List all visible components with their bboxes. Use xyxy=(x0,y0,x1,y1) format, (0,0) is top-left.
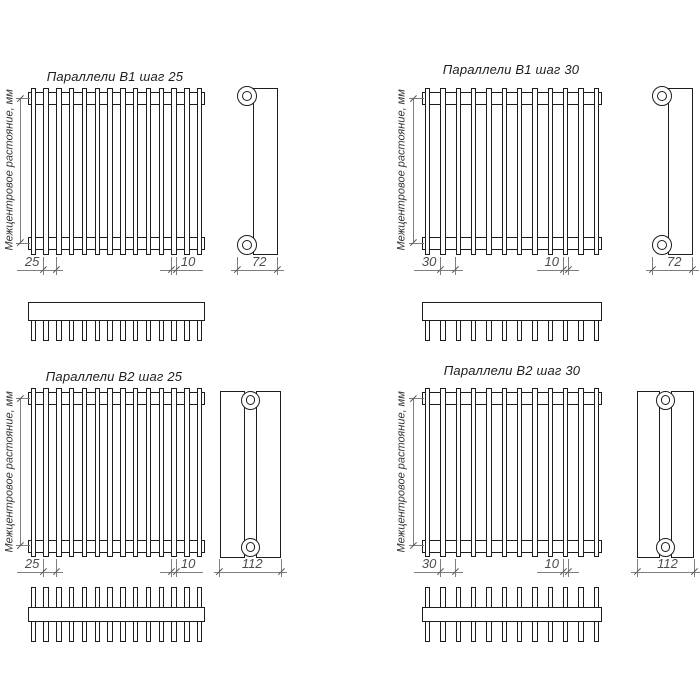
comb-tooth xyxy=(517,621,522,643)
comb-tooth xyxy=(517,587,522,609)
comb-tooth xyxy=(548,621,553,643)
comb-tooth xyxy=(456,587,461,609)
quadrant-b2-step-30: Параллели В2 шаг 30 Межцентровое растоян… xyxy=(0,0,700,700)
side-view-slab xyxy=(637,391,660,559)
pitch-dimension-label: 30 xyxy=(422,557,436,571)
radiator-tube xyxy=(578,388,583,557)
top-collector xyxy=(422,392,602,405)
dimension-line xyxy=(631,572,700,573)
comb-tooth xyxy=(594,587,599,609)
comb-tooth xyxy=(563,621,568,643)
comb-tooth xyxy=(578,587,583,609)
radiator-tube xyxy=(440,388,445,557)
comb-tooth xyxy=(532,587,537,609)
extension-line xyxy=(568,559,569,577)
extension-line xyxy=(455,559,456,577)
extension-line xyxy=(637,559,638,577)
extension-line xyxy=(694,559,695,577)
radiator-tube xyxy=(471,388,476,557)
comb-tooth xyxy=(486,587,491,609)
radiator-tube xyxy=(486,388,491,557)
depth-dimension-label: 112 xyxy=(657,557,678,571)
radiator-tube xyxy=(548,388,553,557)
comb-tooth xyxy=(486,621,491,643)
radiator-tube xyxy=(502,388,507,557)
connection-port-inner xyxy=(661,542,671,552)
comb-tooth xyxy=(502,587,507,609)
comb-tooth xyxy=(471,621,476,643)
radiator-tube xyxy=(425,388,430,557)
dimension-line xyxy=(413,399,414,546)
dimension-line xyxy=(537,572,579,573)
radiator-tube xyxy=(517,388,522,557)
connection-port-inner xyxy=(661,395,671,405)
comb-tooth xyxy=(425,621,430,643)
radiator-tube xyxy=(594,388,599,557)
bottom-collector xyxy=(422,540,602,553)
center-distance-label: Межцентровое растояние, мм xyxy=(395,392,410,552)
comb-tooth xyxy=(502,621,507,643)
comb-tooth xyxy=(578,621,583,643)
drawing-title: Параллели В2 шаг 30 xyxy=(444,363,580,378)
comb-tooth xyxy=(532,621,537,643)
comb-tooth xyxy=(471,587,476,609)
radiator-tube xyxy=(532,388,537,557)
side-view-slab xyxy=(671,391,694,559)
extension-line xyxy=(563,559,564,577)
extension-line xyxy=(440,559,441,577)
drawing-canvas: Параллели В1 шаг 25 Межцентровое растоян… xyxy=(0,0,700,700)
radiator-tube xyxy=(563,388,568,557)
tube-width-dimension-label: 10 xyxy=(545,557,559,571)
comb-tooth xyxy=(440,621,445,643)
comb-tooth xyxy=(440,587,445,609)
comb-tooth xyxy=(456,621,461,643)
comb-tooth xyxy=(548,587,553,609)
radiator-tube xyxy=(456,388,461,557)
comb-tooth xyxy=(425,587,430,609)
comb-bar xyxy=(422,607,602,622)
comb-tooth xyxy=(563,587,568,609)
comb-tooth xyxy=(594,621,599,643)
